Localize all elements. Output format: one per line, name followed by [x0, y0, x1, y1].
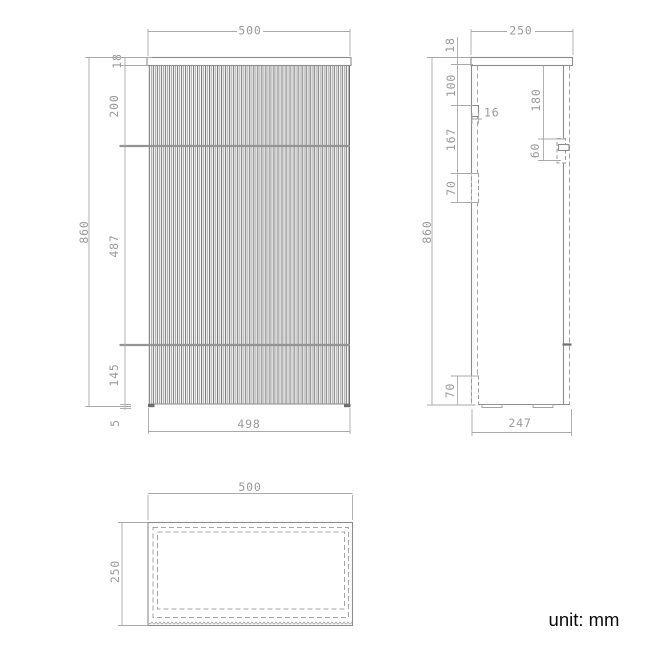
front-dim-upper-label: 200: [107, 94, 121, 117]
side-dim-hinge-offset-label: 100: [444, 74, 458, 97]
front-fluted-panel: [149, 66, 350, 405]
side-dim-height-label: 860: [420, 220, 434, 243]
side-hinge-plate: [472, 106, 479, 117]
top-plate-outline: [148, 523, 353, 626]
front-dim-middle-label: 487: [107, 234, 121, 257]
front-top-plate: [147, 58, 351, 66]
front-dim-bottom-width-label: 498: [237, 417, 260, 431]
front-dim-height-label: 860: [77, 220, 91, 243]
side-bracket-mid-hidden: [472, 174, 479, 203]
side-dim-bracket-mid-label: 70: [444, 180, 458, 195]
side-dim-panel-label: 16: [484, 106, 499, 120]
top-dim-width-label: 500: [238, 480, 261, 494]
front-dim-foot-label: 5: [108, 419, 122, 427]
technical-drawing-page: 500 18 200 487 145 5 860 498: [0, 0, 650, 650]
side-dim-hinge-spacing-label: 167: [444, 128, 458, 151]
side-dim-handle-offset-label: 180: [529, 88, 543, 111]
side-dim-handle-height-label: 60: [528, 143, 542, 158]
unit-label: unit: mm: [549, 609, 620, 630]
front-dim-lower-label: 145: [107, 363, 121, 386]
side-dim-bottom-depth-label: 247: [508, 416, 531, 430]
drawing-canvas: 500 18 200 487 145 5 860 498: [0, 0, 650, 650]
front-dim-top-width-label: 500: [238, 24, 261, 38]
top-dim-depth-label: 250: [108, 560, 122, 583]
side-handle-notch: [559, 145, 570, 151]
side-top-plate: [471, 58, 573, 66]
side-dim-top-depth-label: 250: [509, 24, 532, 38]
side-bracket-bottom-hidden: [472, 376, 479, 405]
front-foot-left: [148, 404, 155, 407]
front-dim-plate-label: 18: [110, 53, 124, 68]
top-fluted-front-edge: [149, 621, 352, 626]
side-dim-bracket-bottom-label: 70: [443, 383, 457, 398]
side-dim-plate-label: 18: [443, 37, 457, 52]
front-foot-right: [344, 404, 351, 407]
